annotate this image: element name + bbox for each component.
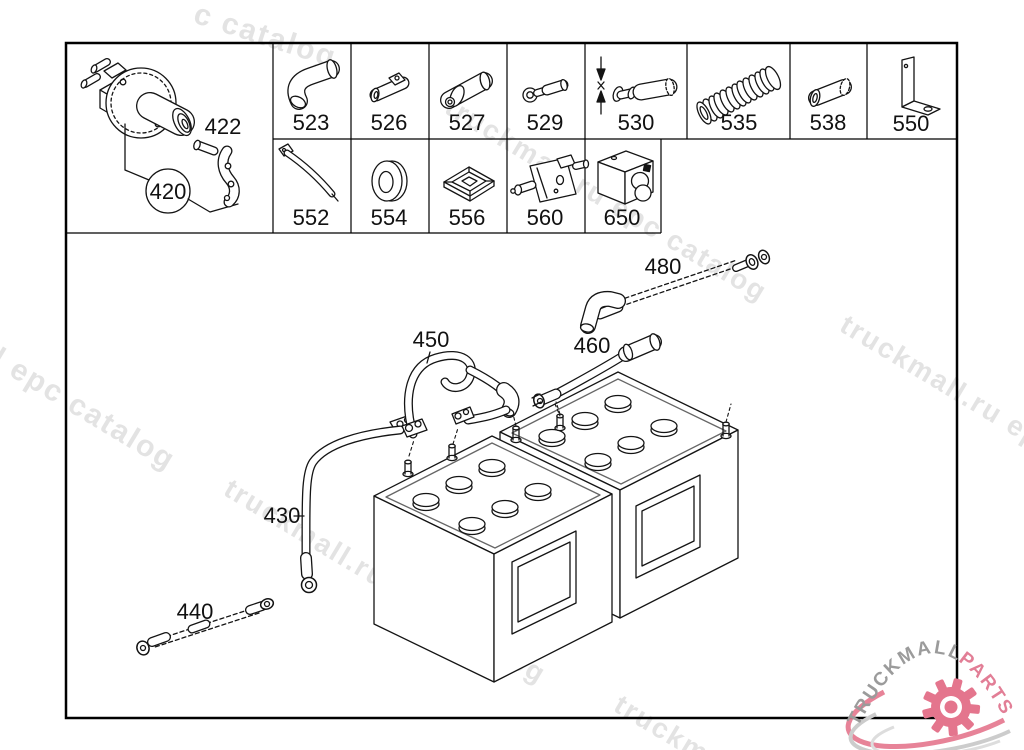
part-label-527[interactable]: 527 <box>449 110 486 135</box>
callout-460-label[interactable]: 460 <box>574 333 611 358</box>
callout-480-label[interactable]: 480 <box>645 254 682 279</box>
callout-420-label[interactable]: 420 <box>150 179 187 204</box>
callout-440-label[interactable]: 440 <box>177 599 214 624</box>
watermark-text-right: truckmall.ru epc catalog <box>835 309 1024 526</box>
truckmall-logo: TRUCKMALL PARTS <box>844 637 1018 750</box>
part-label-550[interactable]: 550 <box>893 111 930 136</box>
terminal-cover-icon <box>598 151 653 204</box>
part-cell-hotspots <box>66 43 957 233</box>
part-label-538[interactable]: 538 <box>810 110 847 135</box>
battery-illustration <box>374 372 738 682</box>
part-label-526[interactable]: 526 <box>371 110 408 135</box>
part-label-560[interactable]: 560 <box>527 205 564 230</box>
watermark-text-bottom: truckmall.ru epc catalog <box>609 689 942 750</box>
callout-422-label[interactable]: 422 <box>205 114 242 139</box>
part-label-556[interactable]: 556 <box>449 205 486 230</box>
part-label-554[interactable]: 554 <box>371 205 408 230</box>
callout-450-label[interactable]: 450 <box>413 327 450 352</box>
epc-diagram-page: c catalog truckmall.ru epc catalog truck… <box>0 0 1024 750</box>
parts-diagram-canvas: c catalog truckmall.ru epc catalog truck… <box>0 0 1024 750</box>
part-label-523[interactable]: 523 <box>293 110 330 135</box>
part-label-530[interactable]: 530 <box>618 110 655 135</box>
part-label-529[interactable]: 529 <box>527 110 564 135</box>
part-label-552[interactable]: 552 <box>293 205 330 230</box>
grommet-icon <box>372 161 407 201</box>
cable-450 <box>402 352 515 437</box>
watermark-text-left: l epc catalog <box>0 342 181 477</box>
part-label-650[interactable]: 650 <box>604 205 641 230</box>
callout-430-label[interactable]: 430 <box>264 503 301 528</box>
